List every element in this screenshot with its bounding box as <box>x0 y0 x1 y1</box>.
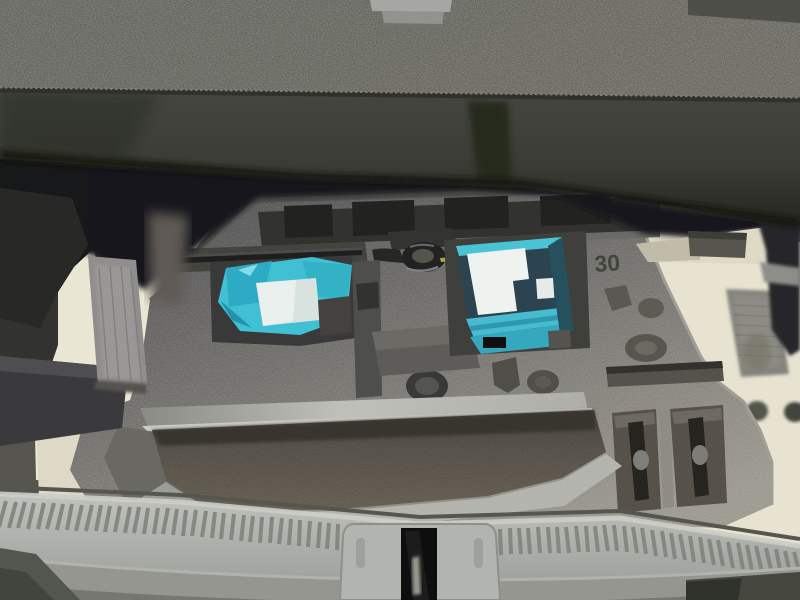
svg-text:30: 30 <box>594 249 621 277</box>
